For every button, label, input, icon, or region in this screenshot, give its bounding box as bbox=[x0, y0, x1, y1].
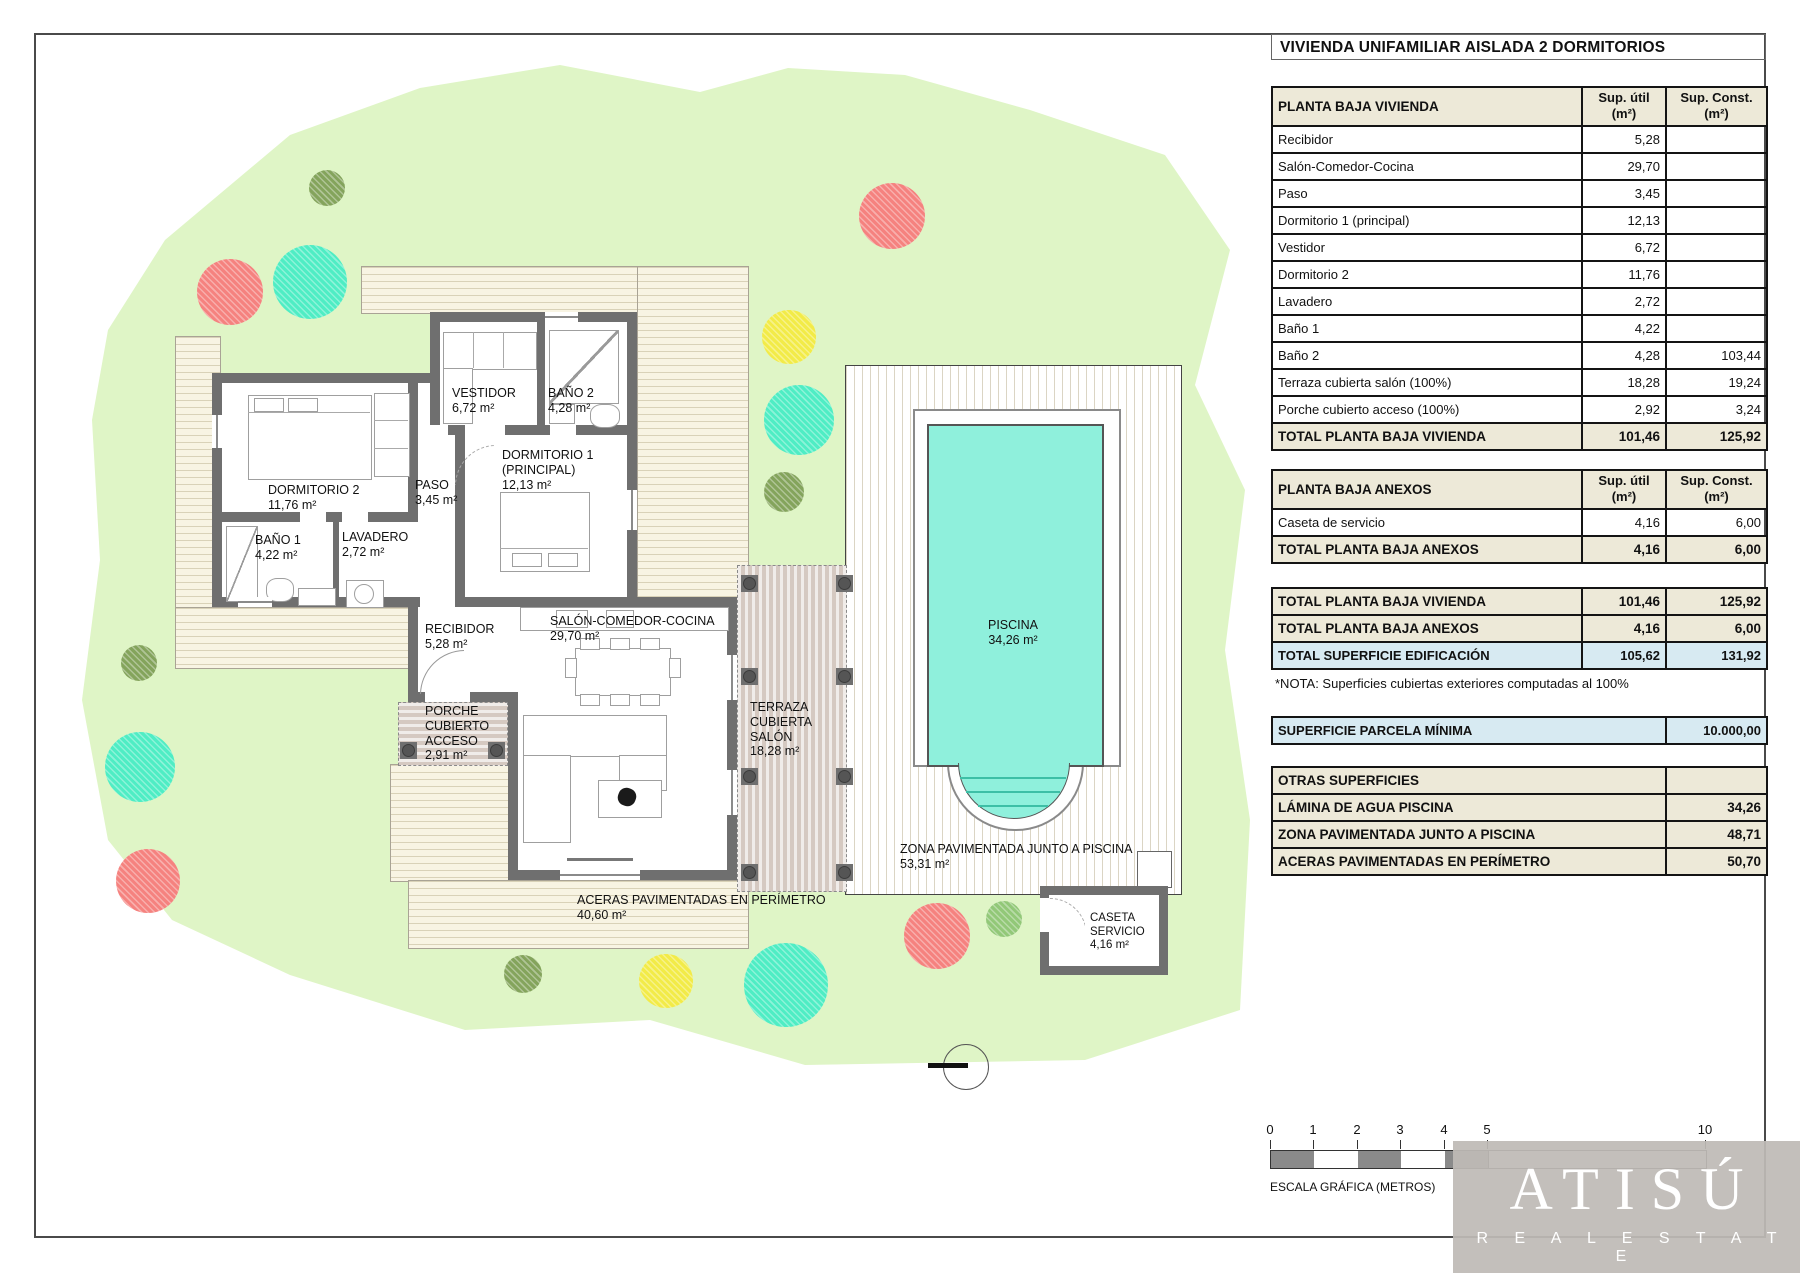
room-label-caseta: CASETA SERVICIO4,16 m² bbox=[1090, 912, 1156, 953]
tree-salmon bbox=[859, 183, 925, 249]
room-label-recibidor: RECIBIDOR5,28 m² bbox=[425, 622, 515, 652]
room-area: 5,28 m² bbox=[425, 637, 515, 652]
wall-segment bbox=[1040, 966, 1168, 975]
table-header: PLANTA BAJA ANEXOS bbox=[1272, 470, 1582, 509]
table-row: Baño 24,28103,44 bbox=[1272, 342, 1767, 369]
wardrobe-shelf bbox=[374, 420, 408, 421]
door-opening bbox=[550, 425, 576, 435]
table-row: Lavadero2,72 bbox=[1272, 288, 1767, 315]
bed-line bbox=[500, 548, 588, 549]
pool-step-line bbox=[978, 805, 1048, 807]
room-name: SALÓN-COMEDOR-COCINA bbox=[550, 614, 715, 628]
room-name: PORCHE CUBIERTO ACCESO bbox=[425, 704, 489, 748]
table-total-row: TOTAL PLANTA BAJA VIVIENDA101,46125,92 bbox=[1272, 423, 1767, 450]
scale-tick bbox=[1444, 1140, 1445, 1149]
plan-sheet: DORMITORIO 211,76 m² BAÑO 14,22 m² LAVAD… bbox=[0, 0, 1800, 1273]
table-row: Salón-Comedor-Cocina29,70 bbox=[1272, 153, 1767, 180]
sink bbox=[298, 588, 336, 606]
table-row: Vestidor6,72 bbox=[1272, 234, 1767, 261]
table-parcela: SUPERFICIE PARCELA MÍNIMA10.000,00 bbox=[1271, 716, 1768, 745]
scale-tick-label: 3 bbox=[1388, 1122, 1412, 1137]
chair bbox=[669, 658, 681, 678]
table-row: Porche cubierto acceso (100%)2,923,24 bbox=[1272, 396, 1767, 423]
table-row: Caseta de servicio4,166,00 bbox=[1272, 509, 1767, 536]
room-label-paso: PASO3,45 m² bbox=[415, 478, 475, 508]
note-text: *NOTA: Superficies cubiertas exteriores … bbox=[1275, 676, 1629, 691]
room-name: BAÑO 2 bbox=[548, 386, 594, 400]
column bbox=[836, 864, 853, 881]
table-resumen: TOTAL PLANTA BAJA VIVIENDA101,46125,92 T… bbox=[1271, 587, 1768, 670]
scale-caption: ESCALA GRÁFICA (METROS) bbox=[1270, 1180, 1435, 1194]
table-row: ACERAS PAVIMENTADAS EN PERÍMETRO50,70 bbox=[1272, 848, 1767, 875]
wall-segment bbox=[1159, 886, 1168, 975]
room-name: DORMITORIO 2 bbox=[268, 483, 359, 497]
table-row: Dormitorio 1 (principal)12,13 bbox=[1272, 207, 1767, 234]
tree-olive bbox=[504, 955, 542, 993]
room-name: PASO bbox=[415, 478, 449, 492]
room-area: 2,91 m² bbox=[425, 748, 510, 763]
deck-north bbox=[361, 266, 639, 314]
tree-olive bbox=[764, 472, 804, 512]
wall-segment bbox=[212, 373, 440, 383]
room-area: 53,31 m² bbox=[900, 857, 1145, 872]
scale-tick bbox=[1357, 1140, 1358, 1149]
wall-segment bbox=[430, 312, 637, 322]
column bbox=[741, 768, 758, 785]
room-area: 2,72 m² bbox=[342, 545, 432, 560]
scale-tick-label: 1 bbox=[1301, 1122, 1325, 1137]
tree-salmon bbox=[116, 849, 180, 913]
column bbox=[741, 668, 758, 685]
col-header-const: Sup. Const.(m²) bbox=[1666, 87, 1767, 126]
table-otras-superficies: OTRAS SUPERFICIES LÁMINA DE AGUA PISCINA… bbox=[1271, 766, 1768, 876]
closet-divider bbox=[503, 332, 504, 368]
column bbox=[400, 742, 417, 759]
tree-yellow bbox=[762, 310, 816, 364]
bed-line bbox=[248, 412, 370, 413]
table-total-row: TOTAL PLANTA BAJA ANEXOS4,166,00 bbox=[1272, 536, 1767, 563]
table-row: Recibidor5,28 bbox=[1272, 126, 1767, 153]
table-row: Terraza cubierta salón (100%)18,2819,24 bbox=[1272, 369, 1767, 396]
col-header-util: Sup. útil(m²) bbox=[1582, 87, 1666, 126]
room-label-dormitorio2: DORMITORIO 211,76 m² bbox=[268, 483, 383, 513]
window bbox=[238, 597, 272, 607]
room-area: 4,22 m² bbox=[255, 548, 325, 563]
wardrobe bbox=[374, 393, 410, 477]
scale-tick-label: 0 bbox=[1258, 1122, 1282, 1137]
table-row: SUPERFICIE PARCELA MÍNIMA10.000,00 bbox=[1272, 717, 1767, 744]
door-opening bbox=[300, 512, 326, 522]
room-label-bano1: BAÑO 14,22 m² bbox=[255, 533, 325, 563]
pillow bbox=[254, 398, 284, 412]
door-arc bbox=[420, 650, 464, 694]
window bbox=[212, 415, 222, 448]
room-label-zona-pavimentada: ZONA PAVIMENTADA JUNTO A PISCINA53,31 m² bbox=[900, 842, 1145, 872]
room-label-salon: SALÓN-COMEDOR-COCINA29,70 m² bbox=[550, 614, 730, 644]
room-area: 29,70 m² bbox=[550, 629, 730, 644]
room-name: LAVADERO bbox=[342, 530, 408, 544]
sofa bbox=[523, 755, 571, 843]
tree-salmon bbox=[904, 903, 970, 969]
room-label-aceras: ACERAS PAVIMENTADAS EN PERÍMETRO40,60 m² bbox=[577, 893, 827, 923]
tree-yellow bbox=[639, 954, 693, 1008]
brand-name: ATISÚ bbox=[1453, 1155, 1800, 1224]
room-name: BAÑO 1 bbox=[255, 533, 301, 547]
table-planta-baja-vivienda: PLANTA BAJA VIVIENDA Sup. útil(m²) Sup. … bbox=[1271, 86, 1768, 451]
wardrobe-shelf bbox=[374, 448, 408, 449]
room-label-bano2: BAÑO 24,28 m² bbox=[548, 386, 618, 416]
brand-subtitle: R E A L E S T A T E bbox=[1453, 1230, 1800, 1266]
col-header-const: Sup. Const.(m²) bbox=[1666, 470, 1767, 509]
dining-table bbox=[575, 648, 671, 696]
wall-segment bbox=[455, 597, 737, 607]
table-total-row: TOTAL PLANTA BAJA ANEXOS4,166,00 bbox=[1272, 615, 1767, 642]
scale-tick bbox=[1313, 1140, 1314, 1149]
table-planta-baja-anexos: PLANTA BAJA ANEXOS Sup. útil(m²) Sup. Co… bbox=[1271, 469, 1768, 564]
tree-green bbox=[986, 901, 1022, 937]
room-name: DORMITORIO 1 (PRINCIPAL) bbox=[502, 448, 593, 477]
room-name: ACERAS PAVIMENTADAS EN PERÍMETRO bbox=[577, 893, 826, 907]
chair bbox=[640, 694, 660, 706]
door-opening bbox=[342, 512, 368, 522]
room-area: 11,76 m² bbox=[268, 498, 383, 513]
shower bbox=[226, 526, 258, 602]
tree-olive bbox=[121, 645, 157, 681]
scale-tick-label: 5 bbox=[1475, 1122, 1499, 1137]
room-area: 40,60 m² bbox=[577, 908, 827, 923]
room-label-piscina: PISCINA34,26 m² bbox=[963, 618, 1063, 648]
window bbox=[545, 312, 578, 322]
pillow bbox=[288, 398, 318, 412]
tree-salmon bbox=[197, 259, 263, 325]
door-opening bbox=[465, 425, 505, 435]
deck-below-porch bbox=[390, 764, 510, 882]
sofa bbox=[523, 715, 667, 757]
table-total-row: TOTAL PLANTA BAJA VIVIENDA101,46125,92 bbox=[1272, 588, 1767, 615]
chair bbox=[565, 658, 577, 678]
room-name: CASETA SERVICIO bbox=[1090, 912, 1145, 938]
tree-turquoise bbox=[744, 943, 828, 1027]
room-area: 34,26 m² bbox=[963, 633, 1063, 648]
tree-turquoise bbox=[105, 732, 175, 802]
table-row: Dormitorio 211,76 bbox=[1272, 261, 1767, 288]
scale-tick bbox=[1270, 1140, 1271, 1149]
room-area: 4,16 m² bbox=[1090, 939, 1156, 953]
table-row: ZONA PAVIMENTADA JUNTO A PISCINA48,71 bbox=[1272, 821, 1767, 848]
room-name: TERRAZA CUBIERTA SALÓN bbox=[750, 700, 811, 744]
door-opening bbox=[1040, 898, 1049, 932]
room-area: 18,28 m² bbox=[750, 744, 835, 759]
room-label-vestidor: VESTIDOR6,72 m² bbox=[452, 386, 542, 416]
room-area: 3,45 m² bbox=[415, 493, 475, 508]
table-header: PLANTA BAJA VIVIENDA bbox=[1272, 87, 1582, 126]
wall-segment bbox=[627, 312, 637, 600]
room-label-dormitorio1: DORMITORIO 1 (PRINCIPAL)12,13 m² bbox=[502, 448, 614, 492]
window bbox=[560, 870, 640, 880]
window bbox=[727, 655, 737, 700]
column bbox=[836, 575, 853, 592]
room-label-lavadero: LAVADERO2,72 m² bbox=[342, 530, 432, 560]
tv-unit bbox=[567, 858, 633, 861]
table-row: Paso3,45 bbox=[1272, 180, 1767, 207]
washer-drum bbox=[354, 584, 374, 604]
wall-segment bbox=[430, 312, 440, 430]
table-row: OTRAS SUPERFICIES bbox=[1272, 767, 1767, 794]
north-indicator-needle bbox=[928, 1063, 968, 1068]
scale-bar-segment bbox=[1271, 1151, 1314, 1168]
pool-water bbox=[927, 424, 1104, 767]
table-total-row: TOTAL SUPERFICIE EDIFICACIÓN105,62131,92 bbox=[1272, 642, 1767, 669]
column bbox=[741, 575, 758, 592]
wall-segment bbox=[408, 600, 418, 700]
column bbox=[836, 668, 853, 685]
room-area: 6,72 m² bbox=[452, 401, 542, 416]
table-row: Baño 14,22 bbox=[1272, 315, 1767, 342]
window bbox=[727, 770, 737, 815]
scale-tick-label: 2 bbox=[1345, 1122, 1369, 1137]
pool-step-line bbox=[966, 791, 1060, 793]
closet bbox=[443, 332, 537, 370]
pillow bbox=[548, 553, 578, 567]
tree-turquoise bbox=[764, 385, 834, 455]
room-area: 4,28 m² bbox=[548, 401, 618, 416]
col-header-util: Sup. útil(m²) bbox=[1582, 470, 1666, 509]
page-title: VIVIENDA UNIFAMILIAR AISLADA 2 DORMITORI… bbox=[1271, 34, 1766, 60]
room-label-porche: PORCHE CUBIERTO ACCESO2,91 m² bbox=[425, 704, 510, 763]
scale-bar-segment bbox=[1358, 1151, 1401, 1168]
closet-divider bbox=[473, 332, 474, 368]
room-area: 12,13 m² bbox=[502, 478, 614, 493]
column bbox=[836, 768, 853, 785]
room-name: VESTIDOR bbox=[452, 386, 516, 400]
scale-tick-label: 10 bbox=[1693, 1122, 1717, 1137]
door-opening bbox=[418, 425, 448, 435]
pillow bbox=[512, 553, 542, 567]
deck-southwest bbox=[175, 607, 410, 669]
wall-segment bbox=[212, 373, 222, 607]
scale-tick bbox=[1400, 1140, 1401, 1149]
room-name: RECIBIDOR bbox=[425, 622, 494, 636]
room-label-terraza: TERRAZA CUBIERTA SALÓN18,28 m² bbox=[750, 700, 835, 759]
tree-turquoise bbox=[273, 245, 347, 319]
scale-tick-label: 4 bbox=[1432, 1122, 1456, 1137]
chair bbox=[610, 694, 630, 706]
table-row: LÁMINA DE AGUA PISCINA34,26 bbox=[1272, 794, 1767, 821]
column bbox=[741, 864, 758, 881]
door-arc bbox=[1049, 898, 1085, 934]
wall-segment bbox=[1040, 886, 1168, 895]
room-name: ZONA PAVIMENTADA JUNTO A PISCINA bbox=[900, 842, 1132, 856]
pool-step-line bbox=[960, 777, 1066, 779]
tree-olive bbox=[309, 170, 345, 206]
room-name: PISCINA bbox=[988, 618, 1038, 632]
brand-logo: ATISÚ R E A L E S T A T E bbox=[1453, 1141, 1800, 1273]
chair bbox=[580, 694, 600, 706]
window bbox=[627, 490, 637, 530]
deck-east bbox=[637, 266, 749, 599]
